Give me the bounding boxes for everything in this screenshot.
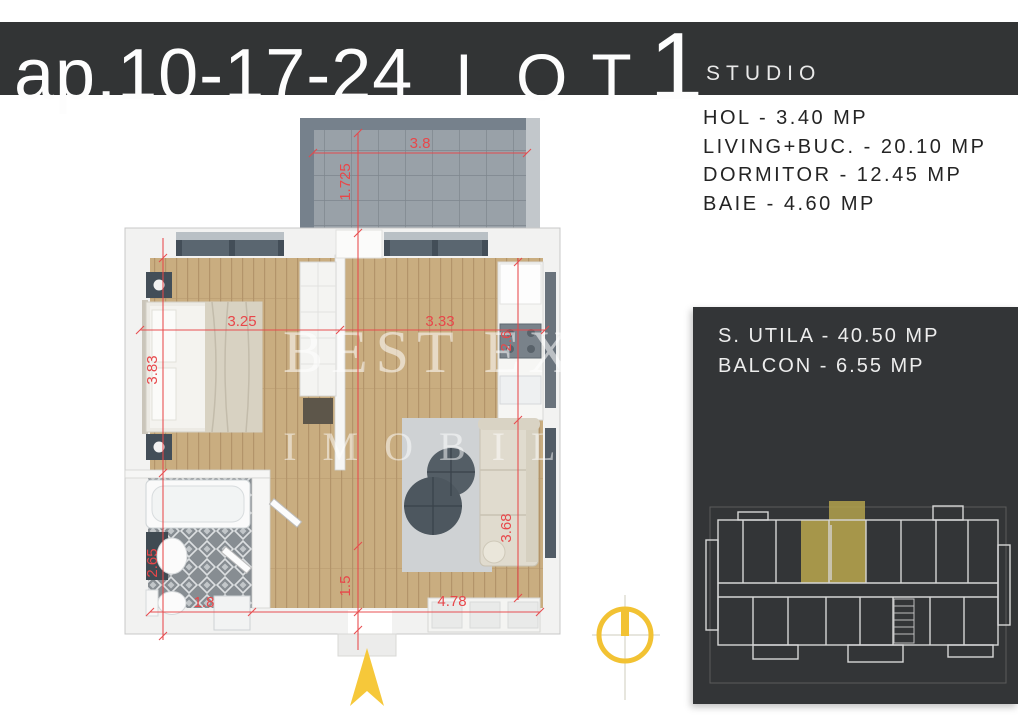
lot-number: 1 xyxy=(650,30,703,105)
room-area-list: HOL - 3.40 MP LIVING+BUC. - 20.10 MP DOR… xyxy=(703,104,986,218)
dim-living-width: 3.33 xyxy=(425,313,454,330)
hall-floor xyxy=(270,470,345,608)
summary-balcon: BALCON - 6.55 MP xyxy=(718,351,939,381)
watermark-line2: IMOBILI xyxy=(283,424,621,469)
dim-bedroom-width: 3.25 xyxy=(227,313,256,330)
nightstand-bottom xyxy=(146,434,172,460)
floorplan-sheet: { "header": { "apartment": "ap.10-17-24"… xyxy=(0,0,1018,720)
page-title: ap.10-17-24 LOT 1 xyxy=(14,30,703,105)
bathtub xyxy=(146,480,250,528)
bedroom-window xyxy=(176,232,284,256)
living-window xyxy=(384,232,488,256)
dim-balcony-width: 3.8 xyxy=(410,135,431,152)
room-list-item-dormitor: DORMITOR - 12.45 MP xyxy=(703,161,986,190)
shower-tray xyxy=(214,596,250,630)
summary-panel: S. UTILA - 40.50 MP BALCON - 6.55 MP xyxy=(693,307,1018,704)
dim-bathroom-depth: 2.65 xyxy=(144,548,161,577)
room-list-item-baie: BAIE - 4.60 MP xyxy=(703,190,986,219)
balcony-door-opening xyxy=(336,230,382,258)
dim-bedroom-depth: 3.83 xyxy=(144,355,161,384)
header-bar: ap.10-17-24 LOT 1 STUDIO xyxy=(0,22,1018,95)
keyplan-unit-highlight xyxy=(801,501,866,583)
room-list-item-living: LIVING+BUC. - 20.10 MP xyxy=(703,133,986,162)
area-summary: S. UTILA - 40.50 MP BALCON - 6.55 MP xyxy=(718,321,939,381)
nightstand-top xyxy=(146,272,172,298)
dim-bottom-width: 4.78 xyxy=(437,593,466,610)
unit-type-label: STUDIO xyxy=(706,62,821,86)
dim-kitchen-depth: 2.6 xyxy=(498,331,515,352)
summary-utila: S. UTILA - 40.50 MP xyxy=(718,321,939,351)
room-list-item-hol: HOL - 3.40 MP xyxy=(703,104,986,133)
dim-bathroom-width: 1.8 xyxy=(194,594,215,611)
keyplan-stairs xyxy=(894,599,914,643)
dim-balcony-depth: 1.725 xyxy=(337,163,354,201)
keyplan-floor-overview xyxy=(698,485,1013,700)
dim-sofa-wall: 3.68 xyxy=(498,513,515,542)
north-arrow-icon xyxy=(350,648,384,706)
dim-hall-depth: 1.5 xyxy=(337,576,354,597)
apartment-floorplan: BEST EXP IMOBILI 3.8 1.725 3.25 3.33 3.8… xyxy=(0,95,700,720)
compass-icon xyxy=(592,595,660,700)
